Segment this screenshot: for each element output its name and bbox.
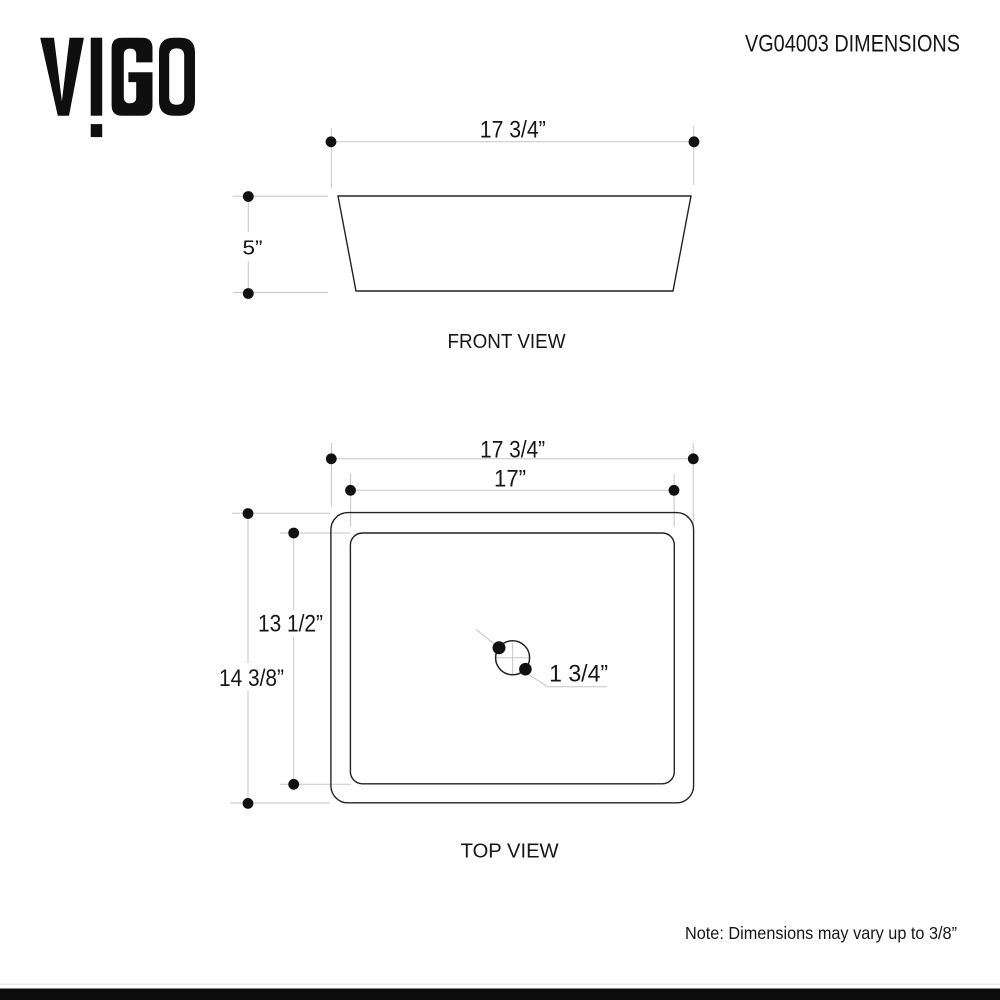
svg-text:5”: 5” [243, 236, 263, 259]
svg-text:14 3/8”: 14 3/8” [219, 665, 284, 692]
svg-text:17”: 17” [494, 466, 526, 493]
svg-text:13 1/2”: 13 1/2” [258, 611, 323, 638]
svg-text:17 3/4”: 17 3/4” [480, 437, 545, 464]
svg-text:VG04003 DIMENSIONS: VG04003 DIMENSIONS [745, 31, 960, 58]
svg-text:FRONT VIEW: FRONT VIEW [448, 331, 566, 353]
svg-text:TOP VIEW: TOP VIEW [461, 841, 559, 863]
svg-text:Note: Dimensions may vary up t: Note: Dimensions may vary up to 3/8” [685, 923, 957, 943]
svg-text:17 3/4”: 17 3/4” [480, 117, 546, 144]
svg-text:1 3/4”: 1 3/4” [549, 661, 608, 688]
